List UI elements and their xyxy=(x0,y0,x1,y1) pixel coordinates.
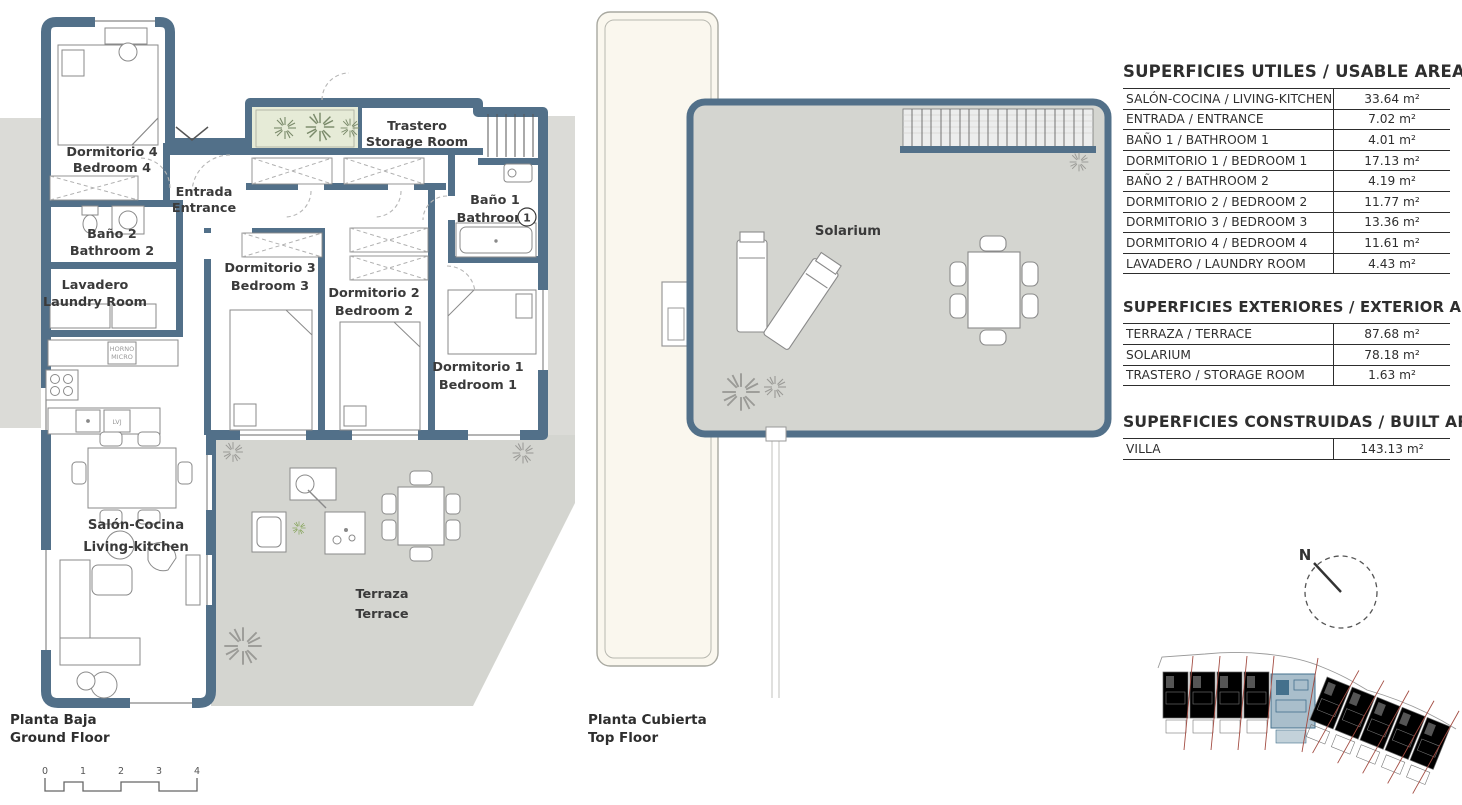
kitchen-micro-label: MICRO xyxy=(111,353,133,361)
exterior-areas-table: TERRAZA / TERRACE87.68 m² SOLARIUM78.18 … xyxy=(1123,323,1450,386)
room-label-bedroom2-es: Dormitorio 2 xyxy=(328,286,419,301)
built-areas-title: SUPERFICIES CONSTRUIDAS / BUILT AREAS xyxy=(1123,413,1450,431)
kitchen-dishwasher-label: LVJ xyxy=(112,418,121,426)
site-villa-highlighted xyxy=(1271,674,1315,743)
room-label-bedroom1-en: Bedroom 1 xyxy=(439,378,517,393)
solarium-notch xyxy=(766,427,786,441)
background-patch-right xyxy=(548,116,575,436)
room-label-bedroom4-en: Bedroom 4 xyxy=(73,161,151,176)
ground-floor-title-en: Ground Floor xyxy=(10,729,110,747)
table-row: SOLARIUM78.18 m² xyxy=(1123,344,1450,365)
top-floor-title: Planta Cubierta Top Floor xyxy=(588,711,707,747)
floor-plan-sheet: HORNO MICRO LVJ xyxy=(0,0,1462,805)
areas-panel: SUPERFICIES UTILES / USABLE AREAS SALÓN-… xyxy=(1123,62,1450,460)
top-floor-plan: Solarium xyxy=(597,12,1108,698)
room-label-living-en: Living-kitchen xyxy=(83,540,188,555)
svg-text:4: 4 xyxy=(194,766,200,777)
exterior-areas-title: SUPERFICIES EXTERIORES / EXTERIOR AREAS xyxy=(1123,299,1450,316)
room-label-entrance-en: Entrance xyxy=(172,201,237,216)
bath1-number: 1 xyxy=(523,212,531,225)
room-label-storage-es: Trastero xyxy=(387,119,447,134)
scale-numbers: 0 1 2 3 4 xyxy=(42,766,200,777)
room-label-terrace-es: Terraza xyxy=(355,587,408,602)
table-row: BAÑO 1 / BATHROOM 14.01 m² xyxy=(1123,129,1450,150)
room-label-bath1-en: Bathroom xyxy=(457,211,528,226)
room-label-bedroom2-en: Bedroom 2 xyxy=(335,304,413,319)
table-row: TRASTERO / STORAGE ROOM1.63 m² xyxy=(1123,365,1450,386)
room-label-terrace-en: Terrace xyxy=(355,607,409,622)
table-row: ENTRADA / ENTRANCE7.02 m² xyxy=(1123,109,1450,130)
table-row: SALÓN-COCINA / LIVING-KITCHEN33.64 m² xyxy=(1123,88,1450,109)
table-row: BAÑO 2 / BATHROOM 24.19 m² xyxy=(1123,170,1450,191)
room-label-bedroom4-es: Dormitorio 4 xyxy=(66,145,157,160)
scale-bar: 0 1 2 3 4 xyxy=(42,766,200,791)
room-label-bedroom3-es: Dormitorio 3 xyxy=(224,261,315,276)
ground-floor-plan: HORNO MICRO LVJ xyxy=(0,15,575,708)
background-patch-left xyxy=(0,118,41,428)
table-row: DORMITORIO 4 / BEDROOM 411.61 m² xyxy=(1123,232,1450,253)
compass-north-label: N xyxy=(1299,546,1312,564)
room-label-bath1-es: Baño 1 xyxy=(470,193,520,208)
solarium-stairs-icon xyxy=(900,109,1096,153)
usable-areas-title: SUPERFICIES UTILES / USABLE AREAS xyxy=(1123,62,1450,81)
room-label-bedroom3-en: Bedroom 3 xyxy=(231,279,309,294)
table-row: DORMITORIO 3 / BEDROOM 313.36 m² xyxy=(1123,212,1450,233)
svg-text:0: 0 xyxy=(42,766,48,777)
room-label-solarium: Solarium xyxy=(815,224,881,239)
room-label-storage-en: Storage Room xyxy=(366,135,468,150)
table-row: TERRAZA / TERRACE87.68 m² xyxy=(1123,323,1450,344)
terrace-area xyxy=(211,435,575,706)
table-row: VILLA143.13 m² xyxy=(1123,438,1450,459)
room-label-living-es: Salón-Cocina xyxy=(88,517,184,533)
built-areas-table: VILLA143.13 m² xyxy=(1123,438,1450,460)
room-label-bath2-es: Baño 2 xyxy=(87,227,137,242)
north-compass: N xyxy=(1299,546,1377,628)
table-row: DORMITORIO 2 / BEDROOM 211.77 m² xyxy=(1123,191,1450,212)
svg-text:1: 1 xyxy=(80,766,86,777)
room-label-laundry-en: Laundry Room xyxy=(43,295,147,310)
table-row: LAVADERO / LAUNDRY ROOM4.43 m² xyxy=(1123,253,1450,274)
room-label-entrance-es: Entrada xyxy=(176,185,233,200)
room-label-bedroom1-es: Dormitorio 1 xyxy=(432,360,523,375)
top-floor-title-es: Planta Cubierta xyxy=(588,711,707,729)
room-label-laundry-es: Lavadero xyxy=(62,278,129,293)
site-plan xyxy=(1158,653,1459,799)
table-row: DORMITORIO 1 / BEDROOM 117.13 m² xyxy=(1123,150,1450,171)
svg-text:3: 3 xyxy=(156,766,162,777)
svg-text:2: 2 xyxy=(118,766,124,777)
ground-floor-title: Planta Baja Ground Floor xyxy=(10,711,110,747)
ground-floor-title-es: Planta Baja xyxy=(10,711,110,729)
top-floor-title-en: Top Floor xyxy=(588,729,707,747)
site-villas-left xyxy=(1163,672,1269,733)
kitchen-oven-label: HORNO xyxy=(110,345,135,353)
room-label-bath2-en: Bathroom 2 xyxy=(70,244,154,259)
usable-areas-table: SALÓN-COCINA / LIVING-KITCHEN33.64 m² EN… xyxy=(1123,88,1450,274)
planter xyxy=(250,105,360,152)
